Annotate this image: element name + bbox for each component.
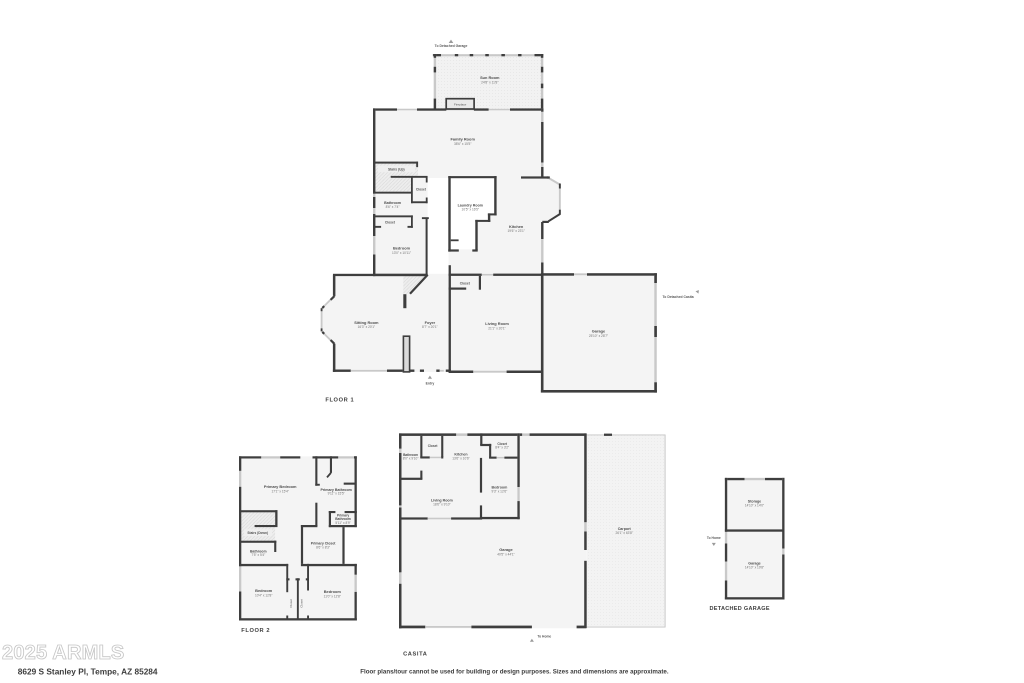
svg-text:13'6" x 10'6": 13'6" x 10'6" [452, 456, 469, 460]
svg-text:26'1" x 63'8": 26'1" x 63'8" [615, 531, 632, 535]
svg-text:Family Room: Family Room [450, 137, 475, 142]
svg-text:13'0" x 10'11": 13'0" x 10'11" [392, 251, 411, 255]
svg-text:Garage: Garage [592, 329, 606, 334]
svg-text:Stairs (Down): Stairs (Down) [247, 531, 268, 535]
svg-text:FLOOR 1: FLOOR 1 [325, 398, 354, 404]
svg-text:25'10" x 28'7": 25'10" x 28'7" [589, 334, 608, 338]
svg-text:Sitting Room: Sitting Room [354, 320, 379, 325]
svg-text:Stairs (Up): Stairs (Up) [388, 167, 405, 171]
svg-text:5'11" x 8'9": 5'11" x 8'9" [335, 521, 350, 525]
svg-text:Closet: Closet [385, 221, 396, 225]
svg-text:17'1" x 15'4": 17'1" x 15'4" [271, 490, 288, 494]
svg-text:To Home: To Home [707, 536, 721, 540]
svg-text:40'5" x 44'1": 40'5" x 44'1" [497, 552, 514, 556]
svg-text:24'8" x 11'8": 24'8" x 11'8" [481, 81, 498, 85]
svg-text:Closet: Closet [428, 444, 439, 448]
svg-text:FLOOR 2: FLOOR 2 [241, 628, 270, 634]
svg-text:19'6" x 23'1": 19'6" x 23'1" [507, 229, 524, 233]
svg-text:Bedroom: Bedroom [393, 246, 411, 251]
svg-text:8'0" x 9'10": 8'0" x 9'10" [403, 457, 419, 461]
svg-text:Bedroom: Bedroom [255, 588, 273, 593]
svg-text:9'11" x 15'5": 9'11" x 15'5" [328, 492, 345, 496]
svg-text:Foyer: Foyer [425, 320, 436, 325]
svg-text:7'5" x 5'4": 7'5" x 5'4" [251, 553, 265, 557]
svg-text:Closet: Closet [460, 282, 471, 286]
svg-text:8'6" x 7'4": 8'6" x 7'4" [386, 205, 400, 209]
svg-text:Fireplace: Fireplace [454, 102, 467, 106]
svg-text:8'4" x 3'2": 8'4" x 3'2" [495, 446, 509, 450]
svg-text:10'4" x 12'8": 10'4" x 12'8" [255, 594, 272, 598]
svg-text:Entry: Entry [426, 381, 435, 385]
svg-text:Closet: Closet [416, 188, 427, 192]
svg-text:Floor plans/tour cannot be use: Floor plans/tour cannot be used for buil… [360, 668, 669, 675]
svg-text:18'6" x 9'10": 18'6" x 9'10" [433, 502, 450, 506]
svg-text:9'3" x 12'6": 9'3" x 12'6" [492, 489, 508, 493]
svg-text:Bedroom: Bedroom [324, 589, 342, 594]
svg-text:8629 S Stanley Pl, Tempe, AZ 8: 8629 S Stanley Pl, Tempe, AZ 85284 [18, 667, 158, 677]
svg-text:Closet: Closet [289, 599, 293, 608]
svg-text:8'6" x 8'3": 8'6" x 8'3" [316, 546, 330, 550]
svg-text:16'3" x 20'1": 16'3" x 20'1" [358, 325, 375, 329]
svg-text:14'10" x 19'8": 14'10" x 19'8" [745, 565, 764, 569]
svg-text:10'5" x 16'5": 10'5" x 16'5" [462, 207, 479, 211]
svg-text:8'7" x 20'1": 8'7" x 20'1" [422, 325, 438, 329]
svg-text:Garage: Garage [499, 547, 513, 552]
svg-text:Closet: Closet [300, 599, 304, 608]
svg-text:To Home: To Home [537, 635, 551, 639]
svg-text:11'0" x 12'8": 11'0" x 12'8" [324, 594, 341, 598]
svg-text:14'10" x 14'0": 14'10" x 14'0" [745, 504, 764, 508]
svg-text:Primary Bedroom: Primary Bedroom [264, 484, 297, 489]
svg-text:DETACHED GARAGE: DETACHED GARAGE [710, 606, 770, 612]
svg-text:Living Room: Living Room [485, 321, 509, 326]
svg-text:38'6" x 15'5": 38'6" x 15'5" [454, 142, 471, 146]
svg-text:2025 ARMLS: 2025 ARMLS [2, 642, 124, 664]
svg-text:To Detached Casita: To Detached Casita [662, 295, 693, 299]
svg-text:Sun Room: Sun Room [480, 75, 500, 80]
svg-text:To Detached Garage: To Detached Garage [435, 44, 468, 48]
svg-text:CASITA: CASITA [403, 651, 427, 657]
svg-text:Kitchen: Kitchen [509, 224, 524, 229]
svg-text:21'1" x 20'1": 21'1" x 20'1" [488, 326, 505, 330]
